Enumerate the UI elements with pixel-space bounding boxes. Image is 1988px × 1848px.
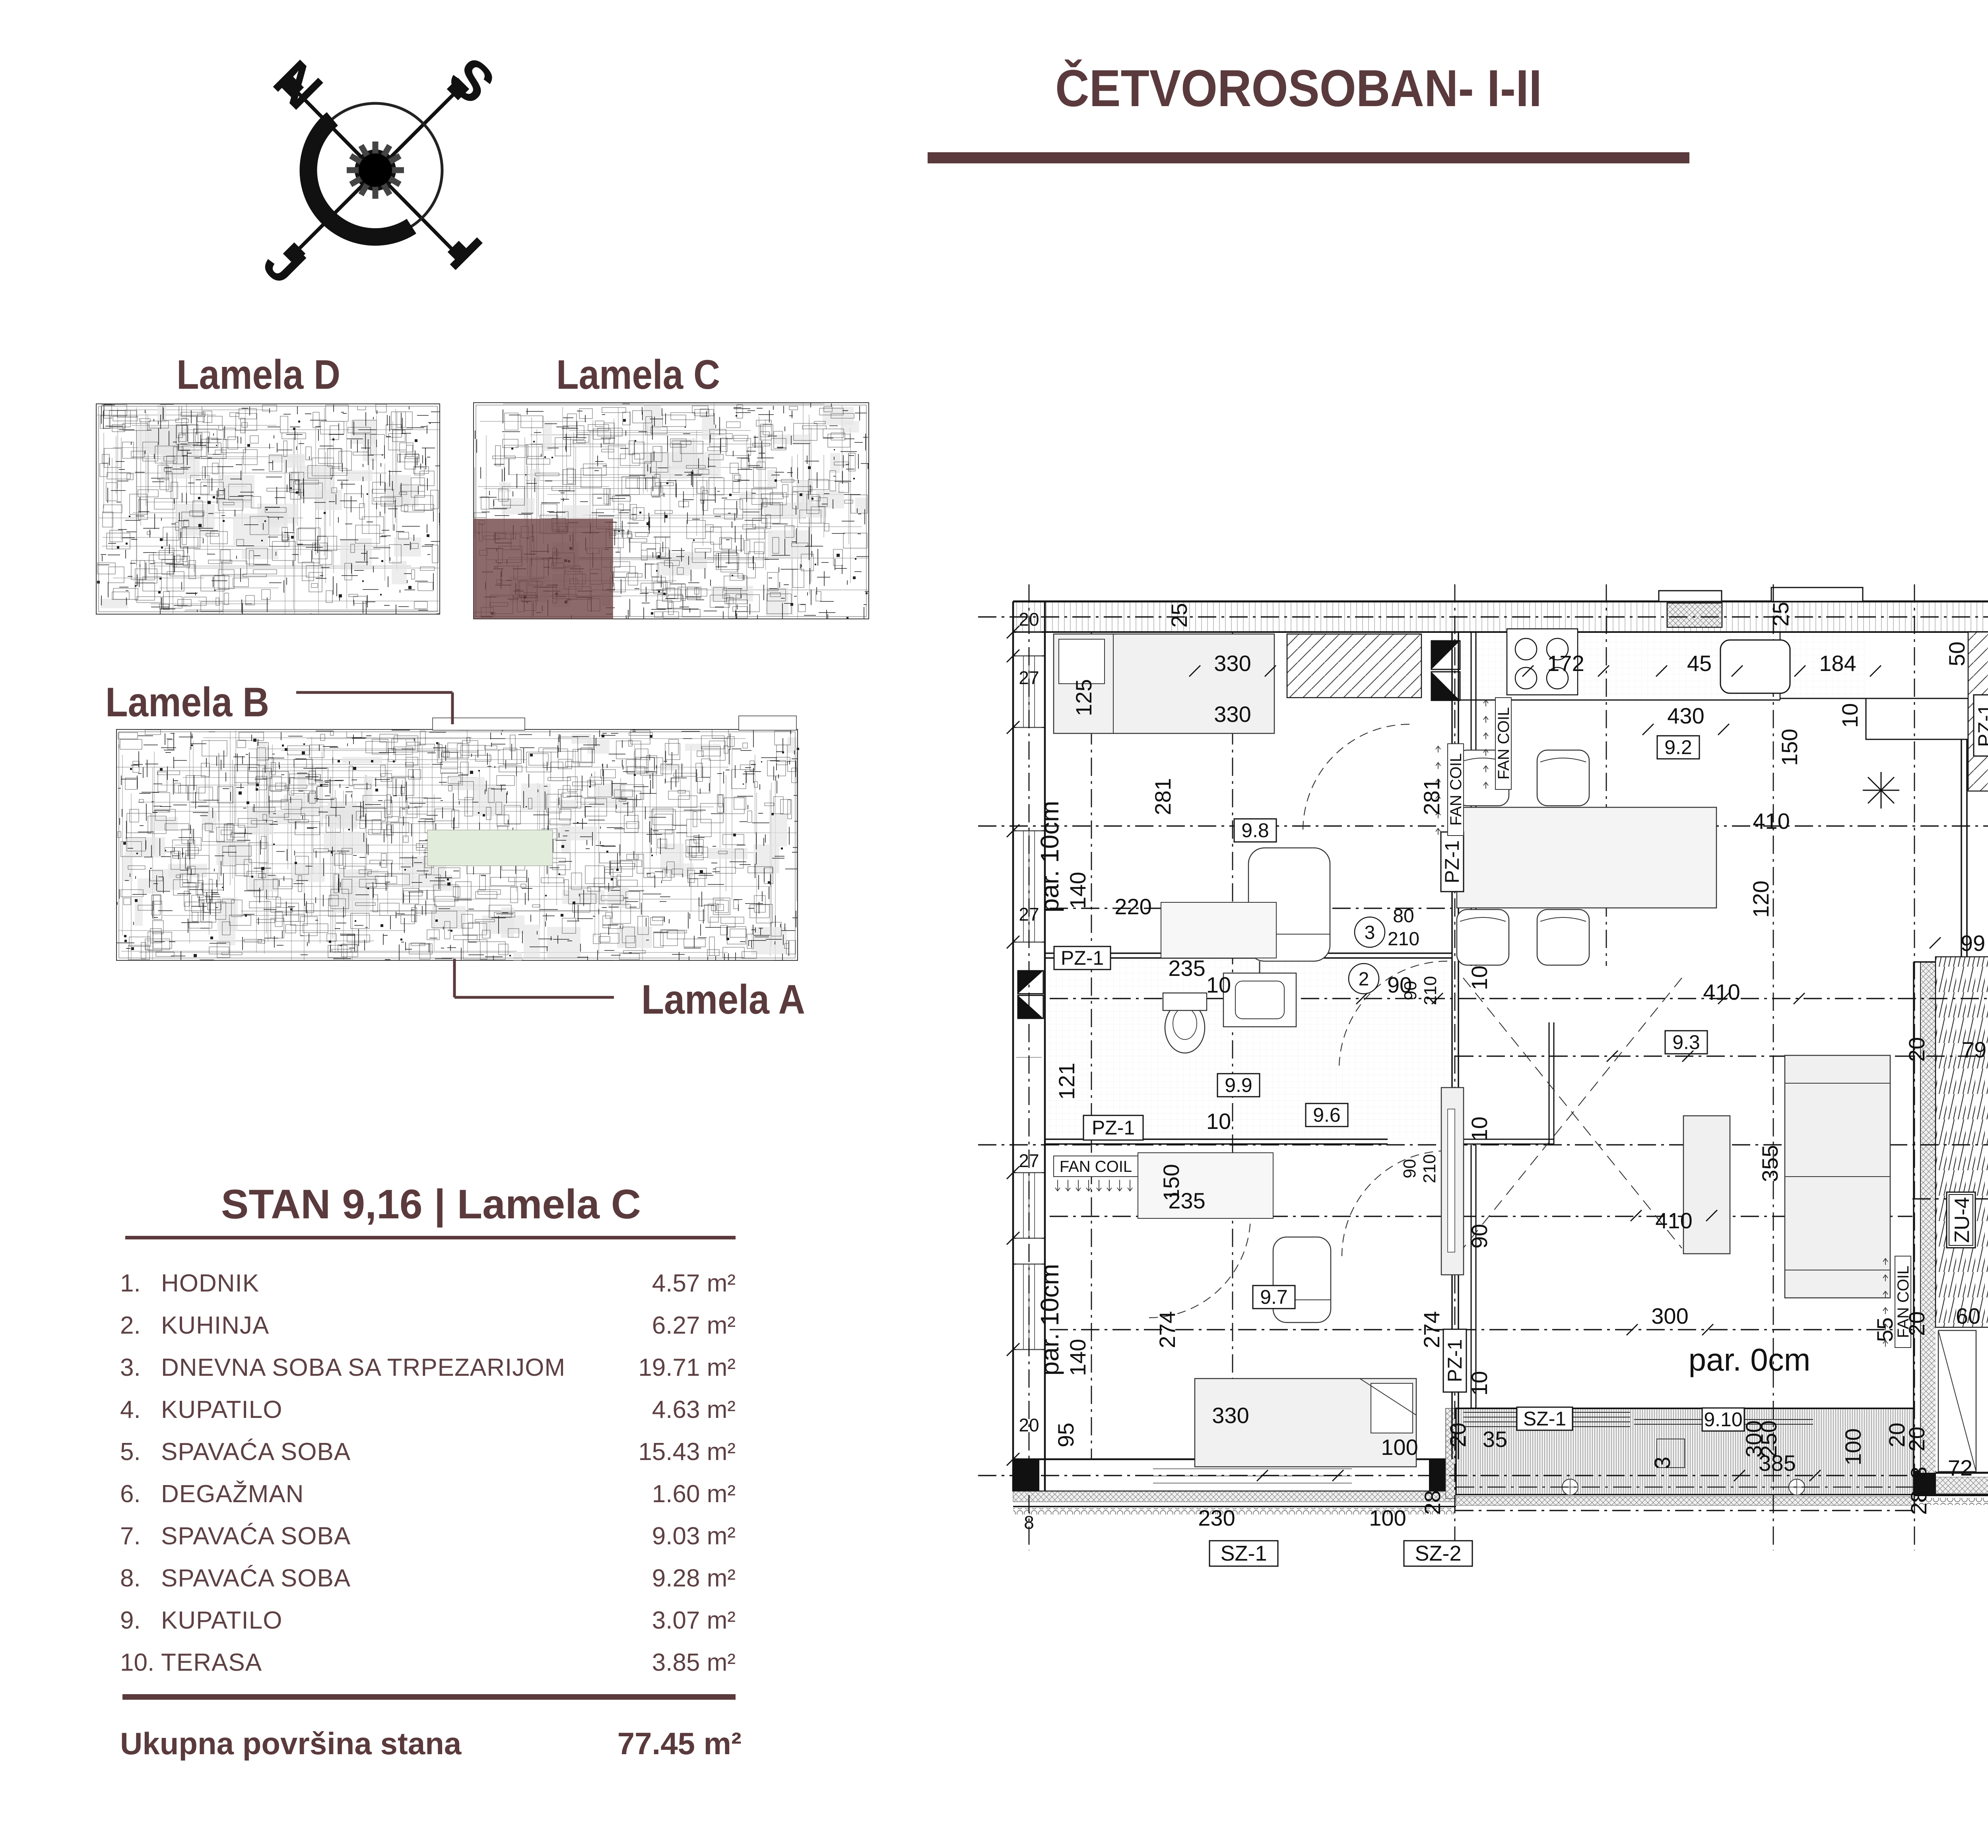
svg-text:9.9: 9.9 [1225,1074,1252,1096]
svg-text:9.28 m²: 9.28 m² [652,1565,736,1592]
svg-text:100: 100 [1381,1435,1418,1460]
svg-text:140: 140 [1065,872,1090,909]
svg-text:KUPATILO: KUPATILO [161,1396,282,1423]
svg-text:90: 90 [1387,972,1412,997]
svg-text:210: 210 [1388,929,1419,950]
svg-text:100: 100 [1840,1428,1866,1465]
svg-text:230: 230 [1198,1505,1235,1530]
svg-text:99: 99 [1961,931,1985,956]
svg-text:ZU-4: ZU-4 [1951,1197,1974,1243]
svg-text:79: 79 [1962,1037,1986,1062]
svg-text:3.07 m²: 3.07 m² [652,1607,736,1634]
svg-text:50: 50 [1944,642,1969,666]
svg-text:FAN COIL: FAN COIL [1495,707,1512,780]
svg-text:9.7: 9.7 [1260,1286,1288,1308]
svg-text:10: 10 [1467,1117,1492,1141]
svg-text:Lamela B: Lamela B [105,679,269,725]
svg-text:par. 0cm: par. 0cm [1689,1342,1811,1377]
svg-text:PZ-1: PZ-1 [1092,1117,1135,1139]
svg-text:SPAVAĆA SOBA: SPAVAĆA SOBA [161,1565,351,1592]
svg-text:TERASA: TERASA [161,1649,262,1676]
svg-text:90: 90 [1467,1224,1492,1249]
svg-text:SZ-1: SZ-1 [1220,1542,1267,1565]
svg-text:10.: 10. [120,1649,154,1676]
svg-text:3: 3 [1650,1456,1675,1469]
svg-text:Ukupna površina stana: Ukupna površina stana [120,1726,462,1761]
svg-text:28: 28 [1420,1490,1445,1515]
svg-text:72: 72 [1948,1455,1972,1480]
svg-text:410: 410 [1655,1208,1692,1233]
svg-text:55: 55 [1872,1317,1897,1342]
svg-text:20: 20 [1904,1037,1929,1062]
svg-text:SZ-2: SZ-2 [1415,1542,1461,1565]
svg-text:DNEVNA SOBA SA TRPEZARIJOM: DNEVNA SOBA SA TRPEZARIJOM [161,1354,565,1381]
svg-text:8.: 8. [120,1565,141,1592]
svg-text:274: 274 [1155,1311,1180,1348]
svg-text:8: 8 [1906,1466,1931,1479]
svg-text:9.3: 9.3 [1672,1031,1700,1053]
svg-text:FAN COIL: FAN COIL [1060,1158,1132,1175]
svg-text:STAN 9,16 | Lamela C: STAN 9,16 | Lamela C [221,1181,641,1228]
svg-text:SPAVAĆA SOBA: SPAVAĆA SOBA [161,1522,351,1550]
svg-text:9.6: 9.6 [1313,1104,1341,1126]
svg-text:60: 60 [1956,1303,1980,1328]
svg-text:9.: 9. [120,1607,141,1634]
svg-text:20: 20 [1904,1311,1929,1336]
svg-text:PZ-1: PZ-1 [1061,947,1104,969]
svg-text:PZ-1: PZ-1 [1444,1339,1466,1382]
svg-text:210: 210 [1420,1154,1439,1183]
svg-text:150: 150 [1777,729,1802,766]
svg-text:par. 10cm: par. 10cm [1035,801,1064,912]
svg-text:20: 20 [1884,1423,1909,1447]
svg-text:ČETVOROSOBAN- I-II: ČETVOROSOBAN- I-II [1055,59,1542,117]
svg-text:95: 95 [1053,1423,1078,1447]
svg-text:7.: 7. [120,1522,141,1550]
svg-text:281: 281 [1150,778,1175,815]
svg-text:184: 184 [1819,651,1856,676]
svg-text:300: 300 [1651,1303,1688,1328]
svg-text:9.8: 9.8 [1241,819,1269,842]
svg-text:25: 25 [1768,602,1793,626]
svg-text:235: 235 [1168,956,1205,981]
svg-text:281: 281 [1419,778,1444,815]
svg-text:125: 125 [1071,679,1096,716]
svg-text:4.63 m²: 4.63 m² [652,1396,736,1423]
svg-text:2: 2 [1359,969,1369,990]
svg-text:25: 25 [1167,603,1192,628]
svg-text:80: 80 [1393,906,1414,927]
svg-text:9.03 m²: 9.03 m² [652,1522,736,1550]
svg-text:4.57 m²: 4.57 m² [652,1270,736,1297]
svg-text:10: 10 [1206,972,1231,997]
svg-text:FAN COIL: FAN COIL [1447,753,1465,826]
svg-text:330: 330 [1212,1403,1249,1428]
svg-text:9.10: 9.10 [1704,1408,1742,1431]
svg-text:1.60 m²: 1.60 m² [652,1480,736,1508]
svg-text:77.45 m²: 77.45 m² [617,1726,742,1761]
svg-text:1.: 1. [120,1270,141,1297]
svg-text:5.: 5. [120,1438,141,1466]
svg-text:120: 120 [1748,880,1773,917]
svg-text:Lamela C: Lamela C [556,352,720,398]
svg-text:410: 410 [1753,809,1790,834]
svg-text:150: 150 [1159,1164,1184,1201]
svg-text:6.27 m²: 6.27 m² [652,1312,736,1339]
svg-text:10: 10 [1467,1371,1492,1396]
svg-text:4.: 4. [120,1396,141,1423]
svg-text:274: 274 [1419,1311,1444,1348]
svg-text:2.: 2. [120,1312,141,1339]
svg-text:10: 10 [1467,966,1492,990]
svg-text:HODNIK: HODNIK [161,1270,259,1297]
svg-text:SZ-1: SZ-1 [1523,1408,1566,1430]
svg-text:15.43 m²: 15.43 m² [638,1438,736,1466]
svg-text:SPAVAĆA SOBA: SPAVAĆA SOBA [161,1438,351,1466]
svg-text:3.: 3. [120,1354,141,1381]
svg-text:PZ-1: PZ-1 [1441,840,1463,883]
svg-text:Lamela A: Lamela A [641,977,805,1023]
svg-text:121: 121 [1054,1063,1079,1099]
svg-text:3: 3 [1365,922,1375,943]
svg-text:140: 140 [1065,1339,1090,1376]
svg-text:6.: 6. [120,1480,141,1508]
svg-text:Lamela D: Lamela D [177,352,340,398]
svg-text:430: 430 [1667,703,1704,728]
svg-text:KUHINJA: KUHINJA [161,1312,269,1339]
svg-text:355: 355 [1757,1145,1782,1182]
svg-text:PZ-1: PZ-1 [1974,704,1988,747]
svg-text:330: 330 [1214,702,1251,727]
svg-text:100: 100 [1369,1505,1406,1530]
svg-text:par. 10cm: par. 10cm [1035,1264,1064,1375]
svg-text:10: 10 [1206,1109,1231,1134]
svg-text:9.2: 9.2 [1664,736,1692,758]
svg-text:220: 220 [1114,894,1151,919]
svg-text:28: 28 [1906,1490,1931,1515]
svg-text:19.71 m²: 19.71 m² [638,1354,736,1381]
svg-text:250: 250 [1756,1420,1781,1457]
svg-text:35: 35 [1483,1427,1507,1452]
svg-text:330: 330 [1214,651,1251,676]
svg-text:210: 210 [1421,976,1440,1005]
svg-text:3.85 m²: 3.85 m² [652,1649,736,1676]
svg-text:45: 45 [1687,651,1712,676]
svg-text:90: 90 [1400,1159,1419,1179]
svg-text:20: 20 [1445,1423,1470,1447]
svg-text:DEGAŽMAN: DEGAŽMAN [161,1480,304,1508]
svg-text:10: 10 [1837,703,1862,728]
svg-text:172: 172 [1547,651,1584,676]
svg-text:KUPATILO: KUPATILO [161,1607,282,1634]
